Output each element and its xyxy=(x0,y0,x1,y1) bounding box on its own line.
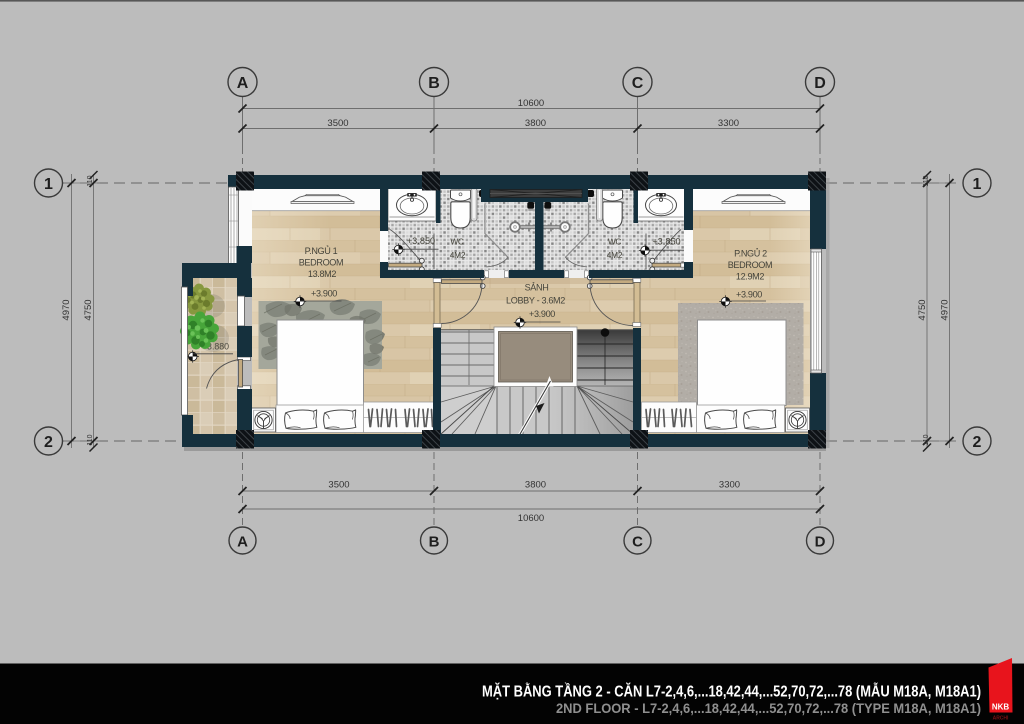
svg-text:4M2: 4M2 xyxy=(450,250,466,260)
svg-text:10600: 10600 xyxy=(518,98,544,109)
svg-text:4750: 4750 xyxy=(83,299,94,320)
svg-text:BEDROOM: BEDROOM xyxy=(299,258,344,268)
svg-text:110: 110 xyxy=(923,175,930,186)
svg-text:WC: WC xyxy=(450,237,464,247)
svg-text:ARCHI: ARCHI xyxy=(993,716,1009,722)
svg-text:3500: 3500 xyxy=(328,480,349,491)
svg-text:12.9M2: 12.9M2 xyxy=(736,272,765,282)
svg-text:D: D xyxy=(815,534,826,551)
svg-text:1: 1 xyxy=(44,176,53,193)
svg-text:13.8M2: 13.8M2 xyxy=(308,269,337,279)
svg-text:110: 110 xyxy=(87,434,94,445)
svg-text:BEDROOM: BEDROOM xyxy=(728,260,773,270)
svg-text:+3.900: +3.900 xyxy=(529,309,555,319)
svg-text:B: B xyxy=(429,534,440,551)
svg-text:110: 110 xyxy=(923,434,930,445)
svg-text:SẢNH: SẢNH xyxy=(525,282,549,293)
svg-text:D: D xyxy=(814,75,826,92)
svg-text:1: 1 xyxy=(973,176,982,193)
svg-text:C: C xyxy=(632,534,643,551)
svg-text:3300: 3300 xyxy=(719,480,740,491)
svg-text:4750: 4750 xyxy=(917,299,928,320)
svg-text:2ND FLOOR - L7-2,4,6,...18,42,: 2ND FLOOR - L7-2,4,6,...18,42,44,...52,7… xyxy=(556,700,981,716)
svg-text:10600: 10600 xyxy=(518,513,544,524)
svg-text:+3.900: +3.900 xyxy=(736,290,762,300)
svg-text:B: B xyxy=(428,75,440,92)
svg-text:4970: 4970 xyxy=(61,299,72,320)
svg-text:NKB: NKB xyxy=(992,703,1010,712)
svg-text:3800: 3800 xyxy=(525,118,546,129)
svg-text:+3.850: +3.850 xyxy=(407,236,435,246)
svg-text:3500: 3500 xyxy=(327,118,348,129)
svg-text:110: 110 xyxy=(87,175,94,186)
svg-text:LOBBY - 3.6M2: LOBBY - 3.6M2 xyxy=(506,296,565,306)
svg-text:A: A xyxy=(237,75,249,92)
svg-text:+3.900: +3.900 xyxy=(311,289,337,299)
svg-text:C: C xyxy=(632,75,644,92)
svg-text:3300: 3300 xyxy=(718,118,739,129)
svg-text:MẶT BẰNG TẦNG 2 - CĂN L7-2,4,6: MẶT BẰNG TẦNG 2 - CĂN L7-2,4,6,...18,42,… xyxy=(482,683,981,701)
svg-text:P.NGỦ 2: P.NGỦ 2 xyxy=(734,248,767,259)
svg-text:4M2: 4M2 xyxy=(607,250,623,260)
svg-text:+3.850: +3.850 xyxy=(652,237,680,247)
svg-text:2: 2 xyxy=(973,434,982,451)
svg-text:P.NGỦ 1: P.NGỦ 1 xyxy=(305,245,338,256)
svg-text:2: 2 xyxy=(44,434,53,451)
svg-text:4970: 4970 xyxy=(940,299,951,320)
svg-text:WC: WC xyxy=(608,237,622,247)
svg-text:3800: 3800 xyxy=(525,480,546,491)
svg-text:A: A xyxy=(237,534,248,551)
